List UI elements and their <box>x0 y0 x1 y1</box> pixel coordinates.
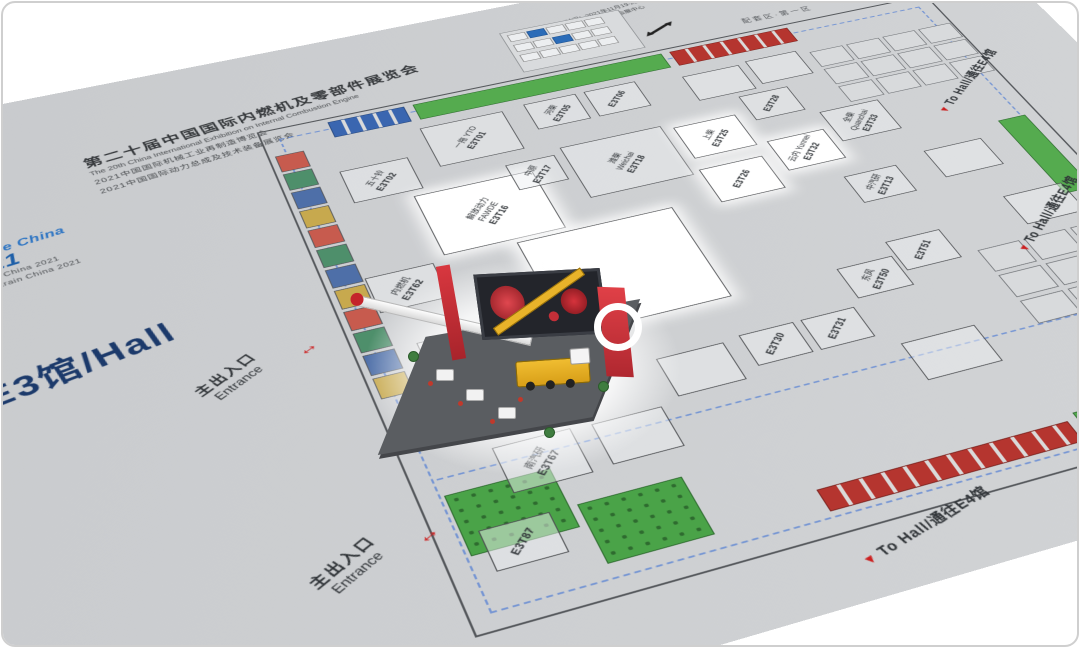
booth-table <box>436 369 454 381</box>
booth-plant <box>544 427 555 438</box>
to-hall-text: To Hall/通往E4馆 <box>873 484 994 560</box>
booth-plant <box>408 351 419 362</box>
booth-table <box>466 389 484 401</box>
to-hall-label: ▼To Hall/通往E4馆 <box>856 482 995 570</box>
entrance-label: 主出入口Entrance <box>192 351 272 406</box>
booth-chair <box>458 401 463 406</box>
to-hall-text: To Hall/通往E4馆 <box>1021 174 1079 244</box>
to-hall-arrow-icon: ▼ <box>1015 241 1034 253</box>
entrance-arrow-icon: ↔ <box>407 520 446 549</box>
to-hall-text: To Hall/通往E4馆 <box>942 48 1001 107</box>
entrance-label: 主出入口Entrance <box>306 534 393 601</box>
featured-booth-3d-render <box>348 231 678 466</box>
booth-chair <box>518 397 523 402</box>
booth-chair <box>490 419 495 424</box>
to-hall-label: ▼To Hall/通往E4馆 <box>933 47 1001 115</box>
to-hall-arrow-icon: ▼ <box>936 104 954 114</box>
screenshot-frame: 第二十届中国国际内燃机及零部件展览会 The 20th China Intern… <box>1 1 1079 647</box>
floorplan-scene: 第二十届中国国际内燃机及零部件展览会 The 20th China Intern… <box>3 3 1077 645</box>
entrance-arrow-icon: ↔ <box>289 337 324 360</box>
booth-table <box>498 407 516 419</box>
booth-ring-logo-icon <box>594 303 642 351</box>
booth-chair <box>428 381 433 386</box>
to-hall-label: ▼To Hall/通往E4馆 <box>1012 173 1079 254</box>
booth-plant <box>598 381 609 392</box>
crane-truck <box>515 356 591 387</box>
